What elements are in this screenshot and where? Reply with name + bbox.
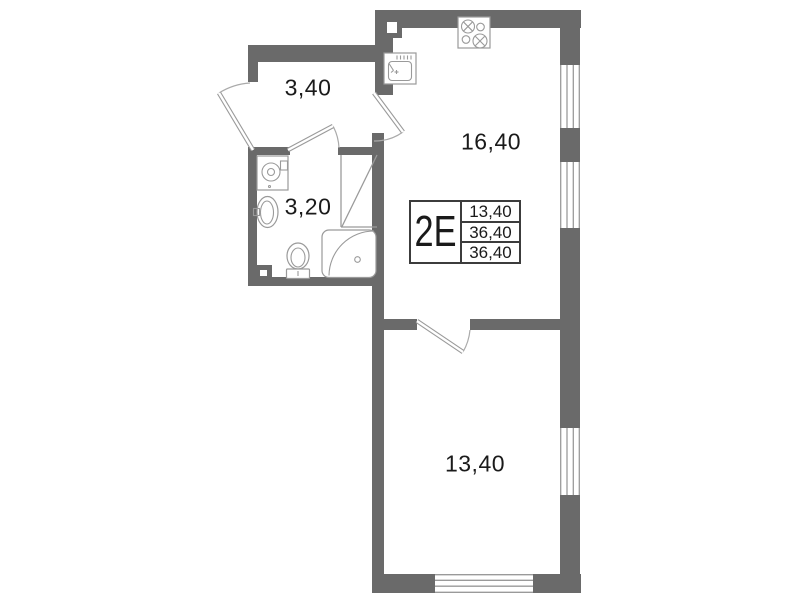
room-area-label-hallway: 3,40	[285, 75, 332, 102]
unit-type-label: 2Е	[416, 202, 454, 262]
unit-area-row-total: 36,40	[462, 221, 519, 242]
door-swing-arc	[219, 83, 250, 93]
floor-plan: 3,40 3,20 16,40 13,40 2Е 13,40 36,40 36,…	[0, 0, 799, 600]
window-glass	[435, 574, 533, 593]
wash-basin-icon	[254, 197, 279, 228]
vent-shaft-bathroom-icon	[258, 268, 270, 279]
wall-right-b	[560, 128, 580, 162]
kitchen-window-2	[560, 162, 580, 228]
wall-hall-stub	[248, 45, 258, 82]
wall-bottom-left	[372, 574, 435, 593]
bedroom-window-right	[560, 428, 580, 495]
wall-mid-vertical	[372, 133, 384, 574]
floor-plan-drawing	[0, 0, 799, 600]
entrance-door	[219, 83, 253, 150]
stove-icon	[458, 17, 490, 48]
vent-shaft-kitchen-icon	[385, 20, 400, 36]
door-swing-diagonal	[342, 155, 377, 227]
corner-bathtub-icon	[322, 230, 376, 278]
unit-area-row-total-2: 36,40	[462, 241, 519, 262]
bedroom-window-bottom	[435, 574, 533, 593]
window-glass	[560, 428, 580, 495]
room-area-label-kitchen-living: 16,40	[461, 129, 521, 156]
unit-info-card: 2Е 13,40 36,40 36,40	[409, 200, 521, 264]
kitchen-window-1	[560, 65, 580, 128]
kitchen-sink-icon	[384, 53, 416, 84]
window-glass	[560, 65, 580, 128]
unit-area-table: 13,40 36,40 36,40	[460, 202, 519, 262]
washing-machine-icon	[257, 156, 288, 190]
wall-divider-right	[470, 319, 560, 330]
room-area-label-bathroom: 3,20	[285, 194, 332, 221]
wall-divider-left	[372, 319, 417, 330]
toilet-icon	[287, 243, 310, 279]
wall-bottom-right	[533, 574, 581, 593]
unit-area-row-living: 13,40	[462, 202, 519, 221]
wall-right-a	[560, 10, 580, 65]
door-swing-arc	[333, 126, 339, 148]
wall-hall-top	[248, 45, 375, 62]
door-swing-arc	[463, 330, 470, 352]
window-glass	[560, 162, 580, 228]
room-area-label-bedroom: 13,40	[445, 451, 505, 478]
wall-bath-top-right	[338, 147, 384, 155]
bedroom-door	[417, 321, 470, 352]
wall-right-c	[560, 228, 580, 428]
